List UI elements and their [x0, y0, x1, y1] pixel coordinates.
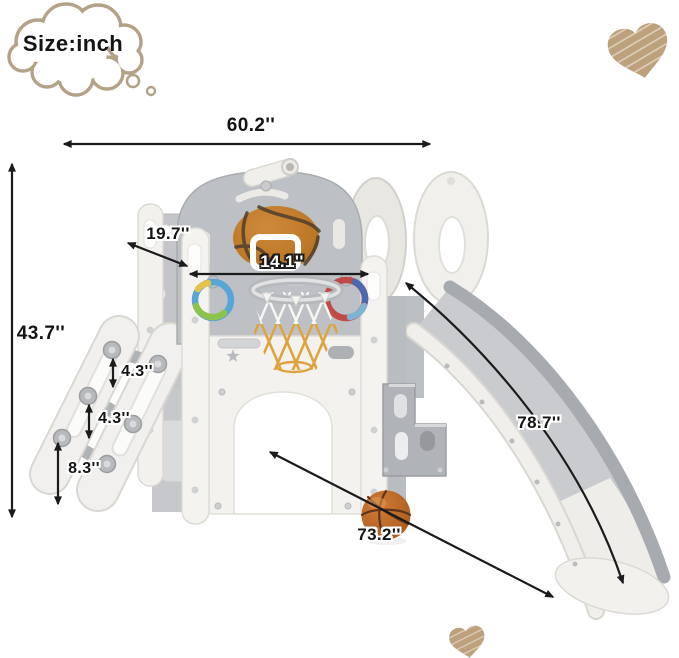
dimension-label-panel-depth: 19.7'' — [146, 225, 190, 242]
product-dimension-diagram: Size:inch 60.2'' 43.7'' 19.7'' 14.1'' 4.… — [0, 0, 679, 658]
thought-bubble-dot — [147, 87, 155, 95]
dimension-label-backboard-width: 14.1'' — [260, 253, 304, 270]
illustration-canvas — [0, 0, 679, 658]
heart-scribble-top-icon — [599, 0, 676, 84]
playset-illustration — [50, 159, 674, 624]
heart-scribble-bottom-icon — [445, 614, 488, 658]
dimension-label-step-gap-middle: 4.3'' — [98, 411, 130, 427]
arch-doorway — [234, 392, 332, 514]
dimension-label-slide-length: 78.7'' — [517, 414, 561, 431]
dimension-label-base-diagonal: 73.2'' — [357, 526, 401, 543]
stairs — [383, 384, 446, 476]
dimension-label-overall-height: 43.7'' — [17, 324, 65, 343]
dimension-label-top-width: 60.2'' — [227, 116, 275, 135]
slide — [414, 287, 674, 624]
dimension-label-step-gap-top: 4.3'' — [121, 364, 153, 380]
thought-bubble-dot — [127, 75, 139, 87]
dimension-label-bottom-step: 8.3'' — [68, 461, 100, 477]
size-unit-label: Size:inch — [23, 33, 123, 55]
